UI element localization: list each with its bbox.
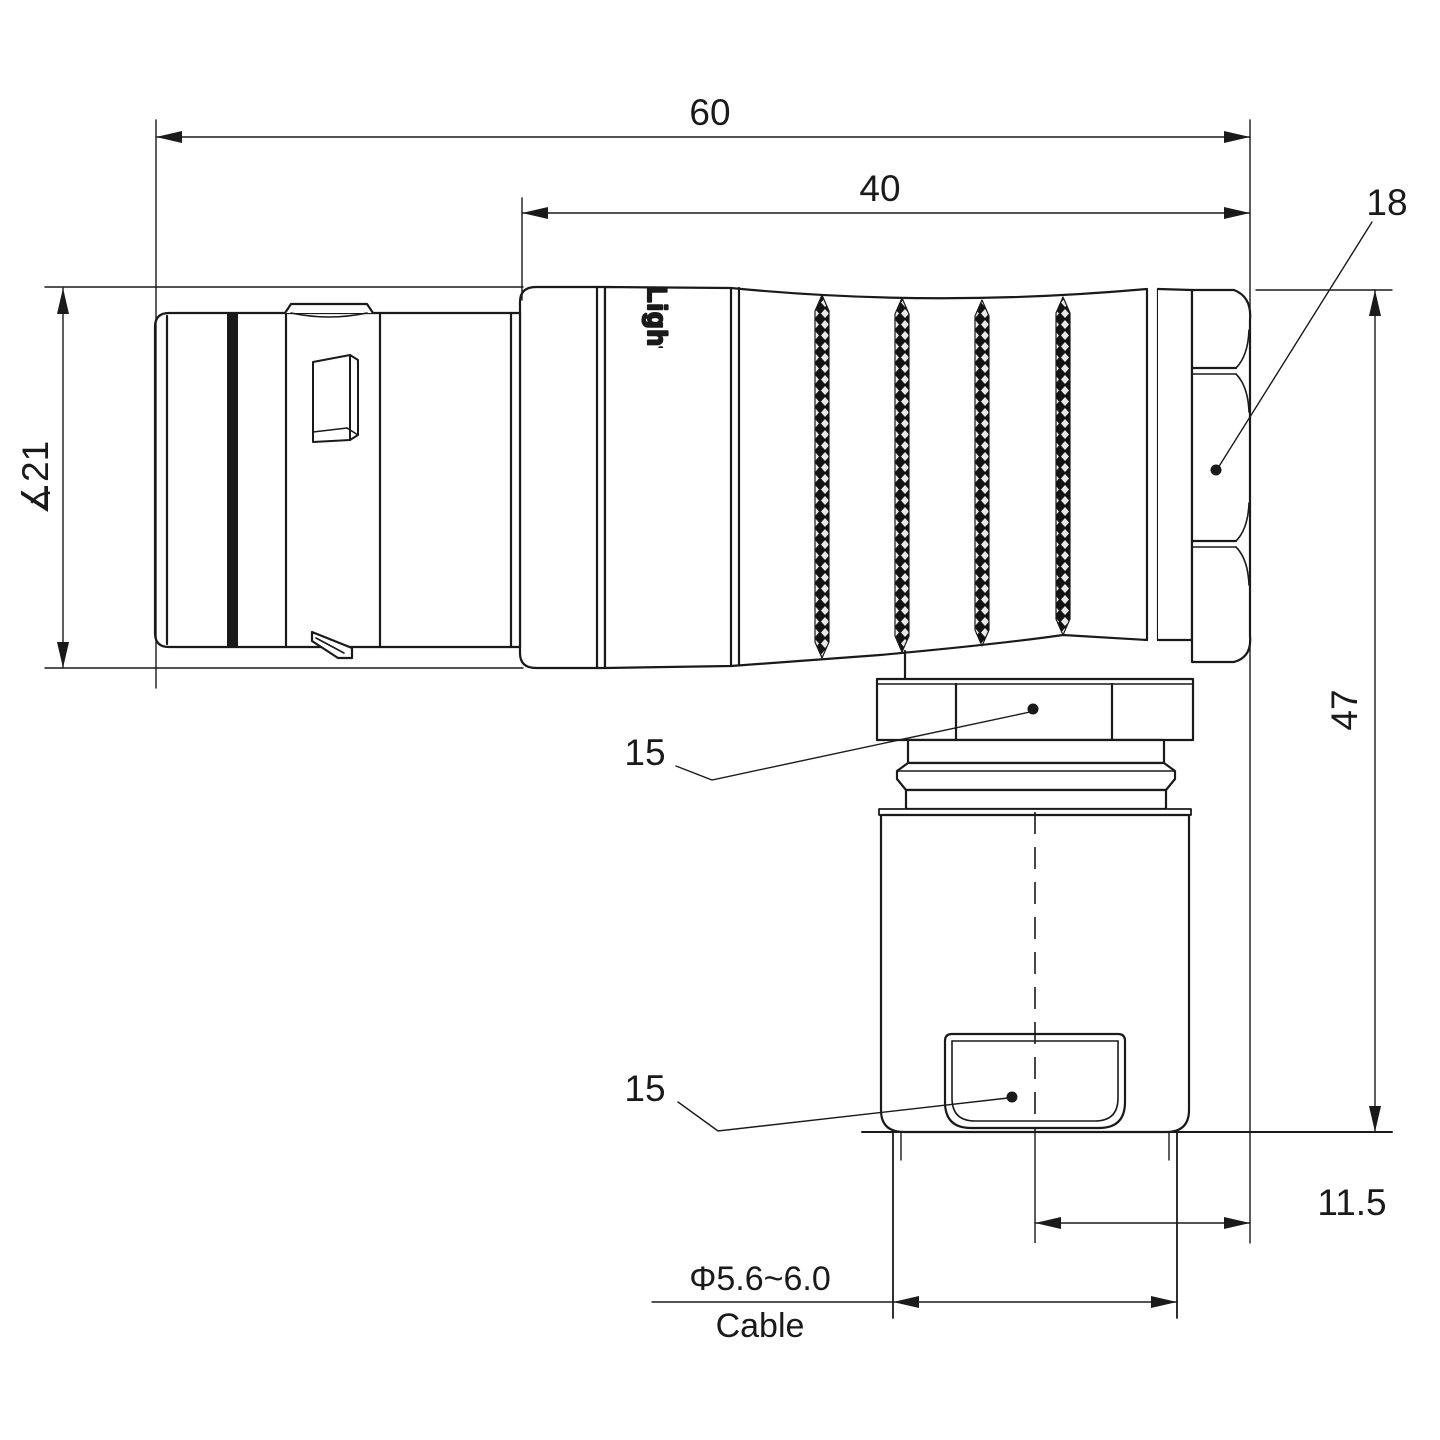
horizontal-plug-body: Lightany [155,286,1250,668]
technical-drawing-page: Lightany [0,0,1440,1440]
dim-label-47: 47 [1324,689,1365,730]
latch-window [313,355,358,442]
knurl-strip [975,300,989,646]
dim-label-15-lower: 15 [624,1068,665,1109]
dim-label-dia21: ∡21 [15,441,56,515]
knurl-strip [815,295,829,658]
sleeve-black-band [227,313,238,647]
dim-label-cable: Cable [716,1307,805,1345]
knurl-strip [895,298,909,652]
back-nut-18 [1192,290,1250,662]
connector-technical-drawing: Lightany [0,0,1440,1440]
gland-collar [897,740,1175,809]
dim-label-40: 40 [859,168,900,209]
key-bump [285,304,373,313]
dimension-dia21 [57,288,69,668]
dim-label-cable-diameter: Φ5.6~6.0 [689,1260,831,1298]
dimension-11-5 [1035,1217,1250,1229]
knurl-strip [1056,297,1070,635]
release-sleeve [155,304,520,658]
dim-label-60: 60 [689,92,730,133]
dim-label-15-upper: 15 [624,732,665,773]
coupling-collar [520,287,605,668]
dim-label-11-5: 11.5 [1317,1182,1386,1223]
dimension-47 [1369,290,1381,1132]
dim-label-18: 18 [1366,182,1407,223]
